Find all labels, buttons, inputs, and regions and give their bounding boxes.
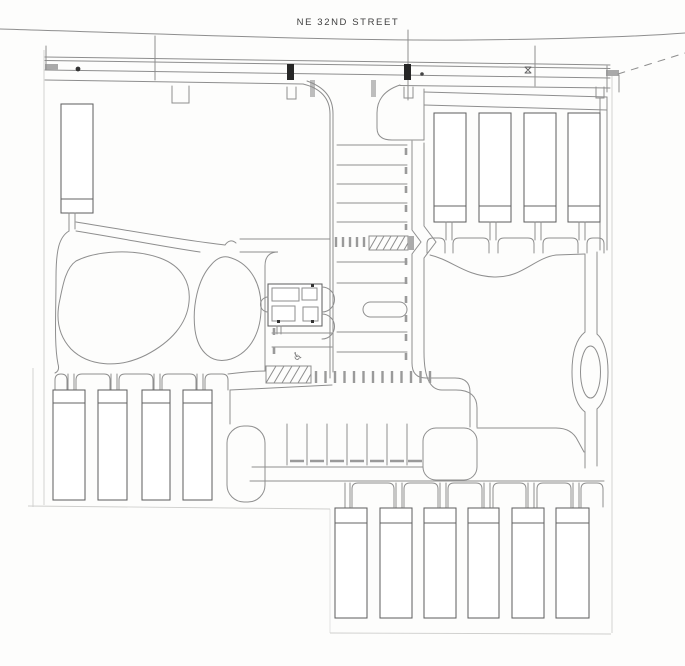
stall-end-island — [363, 302, 407, 317]
monument-sign — [404, 64, 411, 80]
curb-ramp — [606, 70, 619, 76]
street-edge-line — [0, 29, 685, 40]
sidewalk — [45, 30, 685, 103]
path-bumps-southeast — [352, 483, 603, 507]
buildings-northeast — [424, 92, 607, 253]
buildings-southeast — [335, 483, 603, 618]
building — [53, 390, 85, 500]
accessible-parking-icon: ♿ — [291, 348, 304, 363]
building — [142, 390, 170, 500]
building — [512, 508, 544, 618]
monument-sign — [287, 64, 294, 80]
utility-marker — [420, 72, 424, 76]
curb-ramp — [45, 64, 58, 70]
parking-island — [227, 426, 265, 502]
building — [468, 508, 499, 618]
building — [335, 508, 367, 618]
building — [61, 104, 93, 213]
building-northwest — [61, 104, 93, 231]
landscape-paths-west — [55, 222, 261, 373]
curb-tab — [408, 236, 414, 250]
crosswalk-south — [266, 366, 430, 383]
building — [424, 508, 456, 618]
crosswalk-hatch — [369, 236, 408, 250]
lawn-pocket — [423, 428, 477, 480]
landscape-island-round — [194, 257, 261, 361]
kiosk-parking-west: ♿ — [272, 328, 332, 364]
building — [183, 390, 212, 500]
street-label: NE 32ND STREET — [297, 17, 400, 28]
offsite-dashed-line — [618, 53, 685, 74]
site-plan-drawing: NE 32ND STREET — [0, 0, 685, 666]
drive-parking-east — [337, 145, 407, 366]
crosswalk-hatch — [266, 366, 311, 383]
building — [380, 508, 412, 618]
south-parking — [227, 385, 604, 502]
site-plan-page: NE 32ND STREET — [0, 0, 685, 666]
landscape-oval — [581, 346, 601, 398]
mail-kiosk — [261, 284, 335, 339]
path-outer-loop — [55, 231, 69, 373]
utility-marker — [76, 67, 81, 72]
crosswalk-north — [336, 236, 414, 250]
building — [98, 390, 127, 500]
path-bumps-northeast — [427, 238, 604, 253]
survey-marker-icon — [525, 67, 531, 73]
door-swing — [261, 297, 269, 312]
building — [556, 508, 589, 618]
landscape-island-west — [58, 252, 189, 364]
buildings-southwest — [53, 371, 266, 500]
curb-return — [371, 80, 376, 97]
east-lawn — [423, 252, 608, 480]
street: NE 32ND STREET — [0, 17, 685, 40]
